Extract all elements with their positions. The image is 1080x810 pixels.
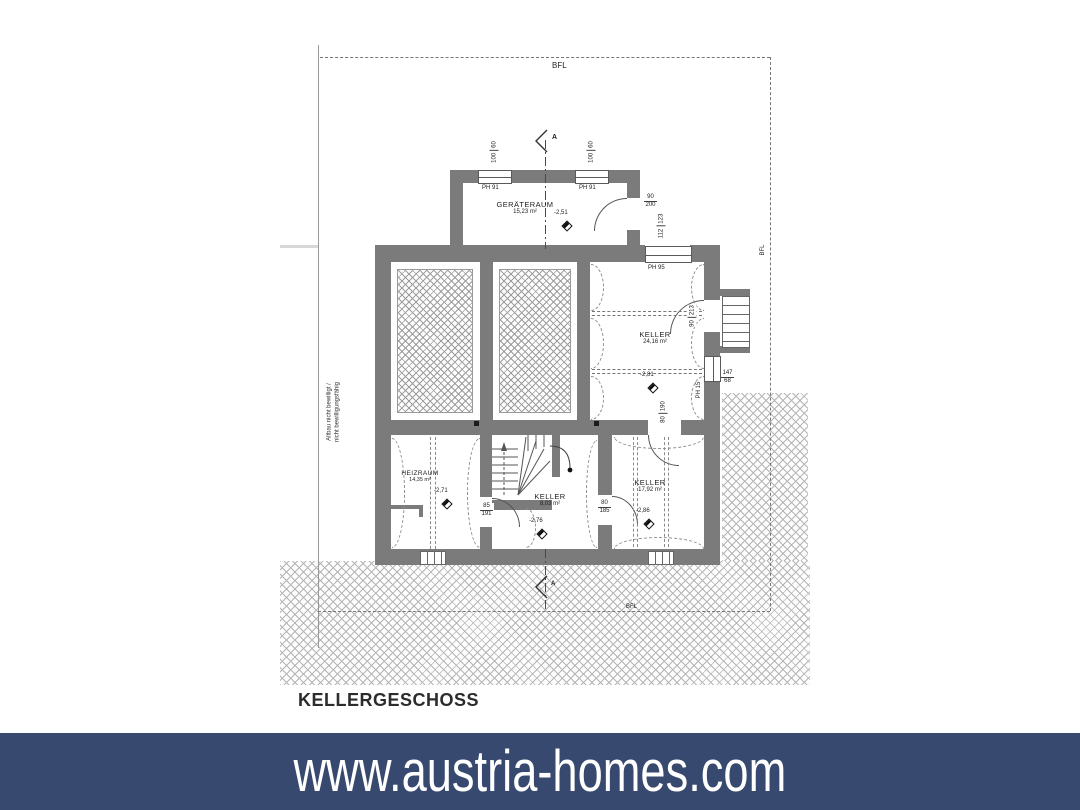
sill-w4: PH 15 <box>696 382 702 399</box>
wall <box>480 435 492 497</box>
vault-line <box>592 311 702 312</box>
unexcavated-area-2 <box>500 270 570 412</box>
dim-height: 60 <box>588 141 594 148</box>
wall <box>598 525 612 549</box>
ground-hatch-right <box>722 393 808 561</box>
wall <box>480 262 493 420</box>
wall <box>510 170 575 183</box>
bfl-line-right <box>770 57 771 611</box>
room-label-heizraum: HEIZRAUM 14,35 m² <box>385 470 455 483</box>
dim-height: 68 <box>724 378 731 385</box>
dim-width: 85 <box>483 503 490 510</box>
wall <box>681 420 720 435</box>
level-marker-icon <box>536 528 547 539</box>
dim-width: 90 <box>647 194 654 201</box>
lightwell-wall <box>718 289 750 296</box>
boundary-stub-left <box>280 245 318 248</box>
floor-plan-canvas: BFL BFL BFL <box>0 0 1080 733</box>
level-keller-sued: -2,86 <box>636 508 650 515</box>
door-size-heizraum: 85191 <box>479 503 494 518</box>
vault-arc <box>614 537 704 549</box>
window-size-w1: 10060 <box>490 141 499 163</box>
vault-line <box>592 369 702 370</box>
room-label-keller-nord: KELLER 24,16 m² <box>620 330 690 345</box>
section-arrow-bottom-icon <box>531 574 551 600</box>
room-name: HEIZRAUM <box>385 470 455 477</box>
dim-height: 123 <box>658 214 664 224</box>
level-keller-nord: -2,81 <box>640 372 654 379</box>
sill-w2: PH 91 <box>579 185 596 192</box>
vault-arc <box>591 376 604 420</box>
dim-width: 100 <box>588 153 594 163</box>
dim-width: 80 <box>601 500 608 507</box>
section-arrow-top-icon <box>531 128 551 154</box>
vault-line <box>592 315 702 316</box>
stair-treads <box>492 435 552 500</box>
vault-arc <box>526 508 536 548</box>
door-swing-geraeteraum <box>594 198 627 231</box>
room-label-keller-sued: KELLER 17,92 m² <box>615 478 685 493</box>
level-marker-icon <box>561 220 572 231</box>
window-lightwell <box>704 356 721 382</box>
dim-height: 213 <box>689 305 695 315</box>
wall-vent <box>420 551 446 565</box>
door-size-keller-sued: 80190 <box>659 401 668 423</box>
door-size-aussentuer: 90213 <box>688 305 697 327</box>
dim-height: 190 <box>660 401 666 411</box>
wall <box>627 170 640 198</box>
level-marker-icon <box>647 382 658 393</box>
unexcavated-area-1 <box>398 270 472 412</box>
dim-height: 185 <box>599 508 609 515</box>
dim-width: 147 <box>722 370 732 377</box>
section-label-bottom: A <box>551 581 555 588</box>
stair-entry-arrow <box>548 444 574 474</box>
vault-arc <box>467 438 480 548</box>
section-label-top: A <box>552 134 557 142</box>
bfl-line-bottom <box>318 611 770 612</box>
window-size-w3: 112123 <box>657 214 666 239</box>
room-name: GERÄTERAUM <box>470 200 580 209</box>
side-note-line1: Altbau nicht bewilligt / <box>327 383 333 441</box>
room-area: 24,16 m² <box>620 339 690 345</box>
dim-height: 191 <box>481 511 491 518</box>
room-label-keller-mitte: KELLER 8,03 m² <box>515 492 585 507</box>
bfl-label-right: BFL <box>760 244 766 255</box>
vault-arc <box>392 438 405 548</box>
level-marker-icon <box>643 518 654 529</box>
wall <box>598 435 612 495</box>
level-heizraum: -2,71 <box>434 488 448 495</box>
door-swing-keller-mitte <box>612 496 638 525</box>
vault-arc <box>586 440 597 548</box>
wall-vent <box>648 551 674 565</box>
lightwell-stair <box>722 296 750 348</box>
wall <box>375 245 645 262</box>
door-gap-geraeteraum <box>627 198 640 230</box>
room-area: 17,92 m² <box>615 487 685 493</box>
bfl-label-bottom: BFL <box>626 604 637 611</box>
wall <box>577 262 590 420</box>
dim-height: 200 <box>645 202 655 209</box>
section-line-top <box>545 140 546 249</box>
marker-square <box>594 421 599 426</box>
side-note-line2: nicht bewilligungsfähig <box>334 382 340 442</box>
window-geraeteraum-1 <box>478 170 512 184</box>
dim-height: 60 <box>491 141 497 148</box>
site-boundary-left <box>318 45 319 648</box>
window-geraeteraum-2 <box>575 170 609 184</box>
room-name: KELLER <box>620 330 690 339</box>
door-gap-aussentuer <box>704 300 720 332</box>
dim-lichtschacht: 14768 <box>720 370 735 385</box>
vault-arc <box>591 318 604 369</box>
bfl-line-top <box>320 57 770 58</box>
level-geraeteraum: -2,51 <box>554 210 568 217</box>
wall <box>375 420 648 435</box>
room-name: KELLER <box>515 492 585 501</box>
marker-square <box>474 421 479 426</box>
bfl-label-top: BFL <box>552 61 567 71</box>
wall <box>375 245 391 565</box>
dim-width: 90 <box>689 320 695 327</box>
wall <box>480 527 492 549</box>
vault-arc <box>591 264 604 311</box>
sill-w1: PH 91 <box>482 185 499 192</box>
room-area: 8,03 m² <box>515 501 585 507</box>
dim-width: 80 <box>660 416 666 423</box>
drawing-title: KELLERGESCHOSS <box>298 690 479 711</box>
level-marker-icon <box>441 498 452 509</box>
dim-width: 100 <box>491 153 497 163</box>
sill-w3: PH 95 <box>648 265 665 272</box>
room-name: KELLER <box>615 478 685 487</box>
website-banner: www.austria-homes.com <box>0 733 1080 810</box>
vault-arc <box>614 437 704 449</box>
level-keller-mitte: -2,76 <box>529 518 543 525</box>
side-note: Altbau nicht bewilligt / nicht bewilligu… <box>327 382 342 442</box>
flue-line <box>430 437 431 549</box>
window-size-w2: 10060 <box>587 141 596 163</box>
door-size-geraeteraum: 90200 <box>643 194 658 209</box>
wall-stub <box>419 505 423 517</box>
window-keller-nord <box>645 246 692 263</box>
website-url: www.austria-homes.com <box>294 738 787 805</box>
door-size-keller-mitte: 80185 <box>597 500 612 515</box>
dim-width: 112 <box>658 229 664 239</box>
room-area: 14,35 m² <box>385 477 455 483</box>
